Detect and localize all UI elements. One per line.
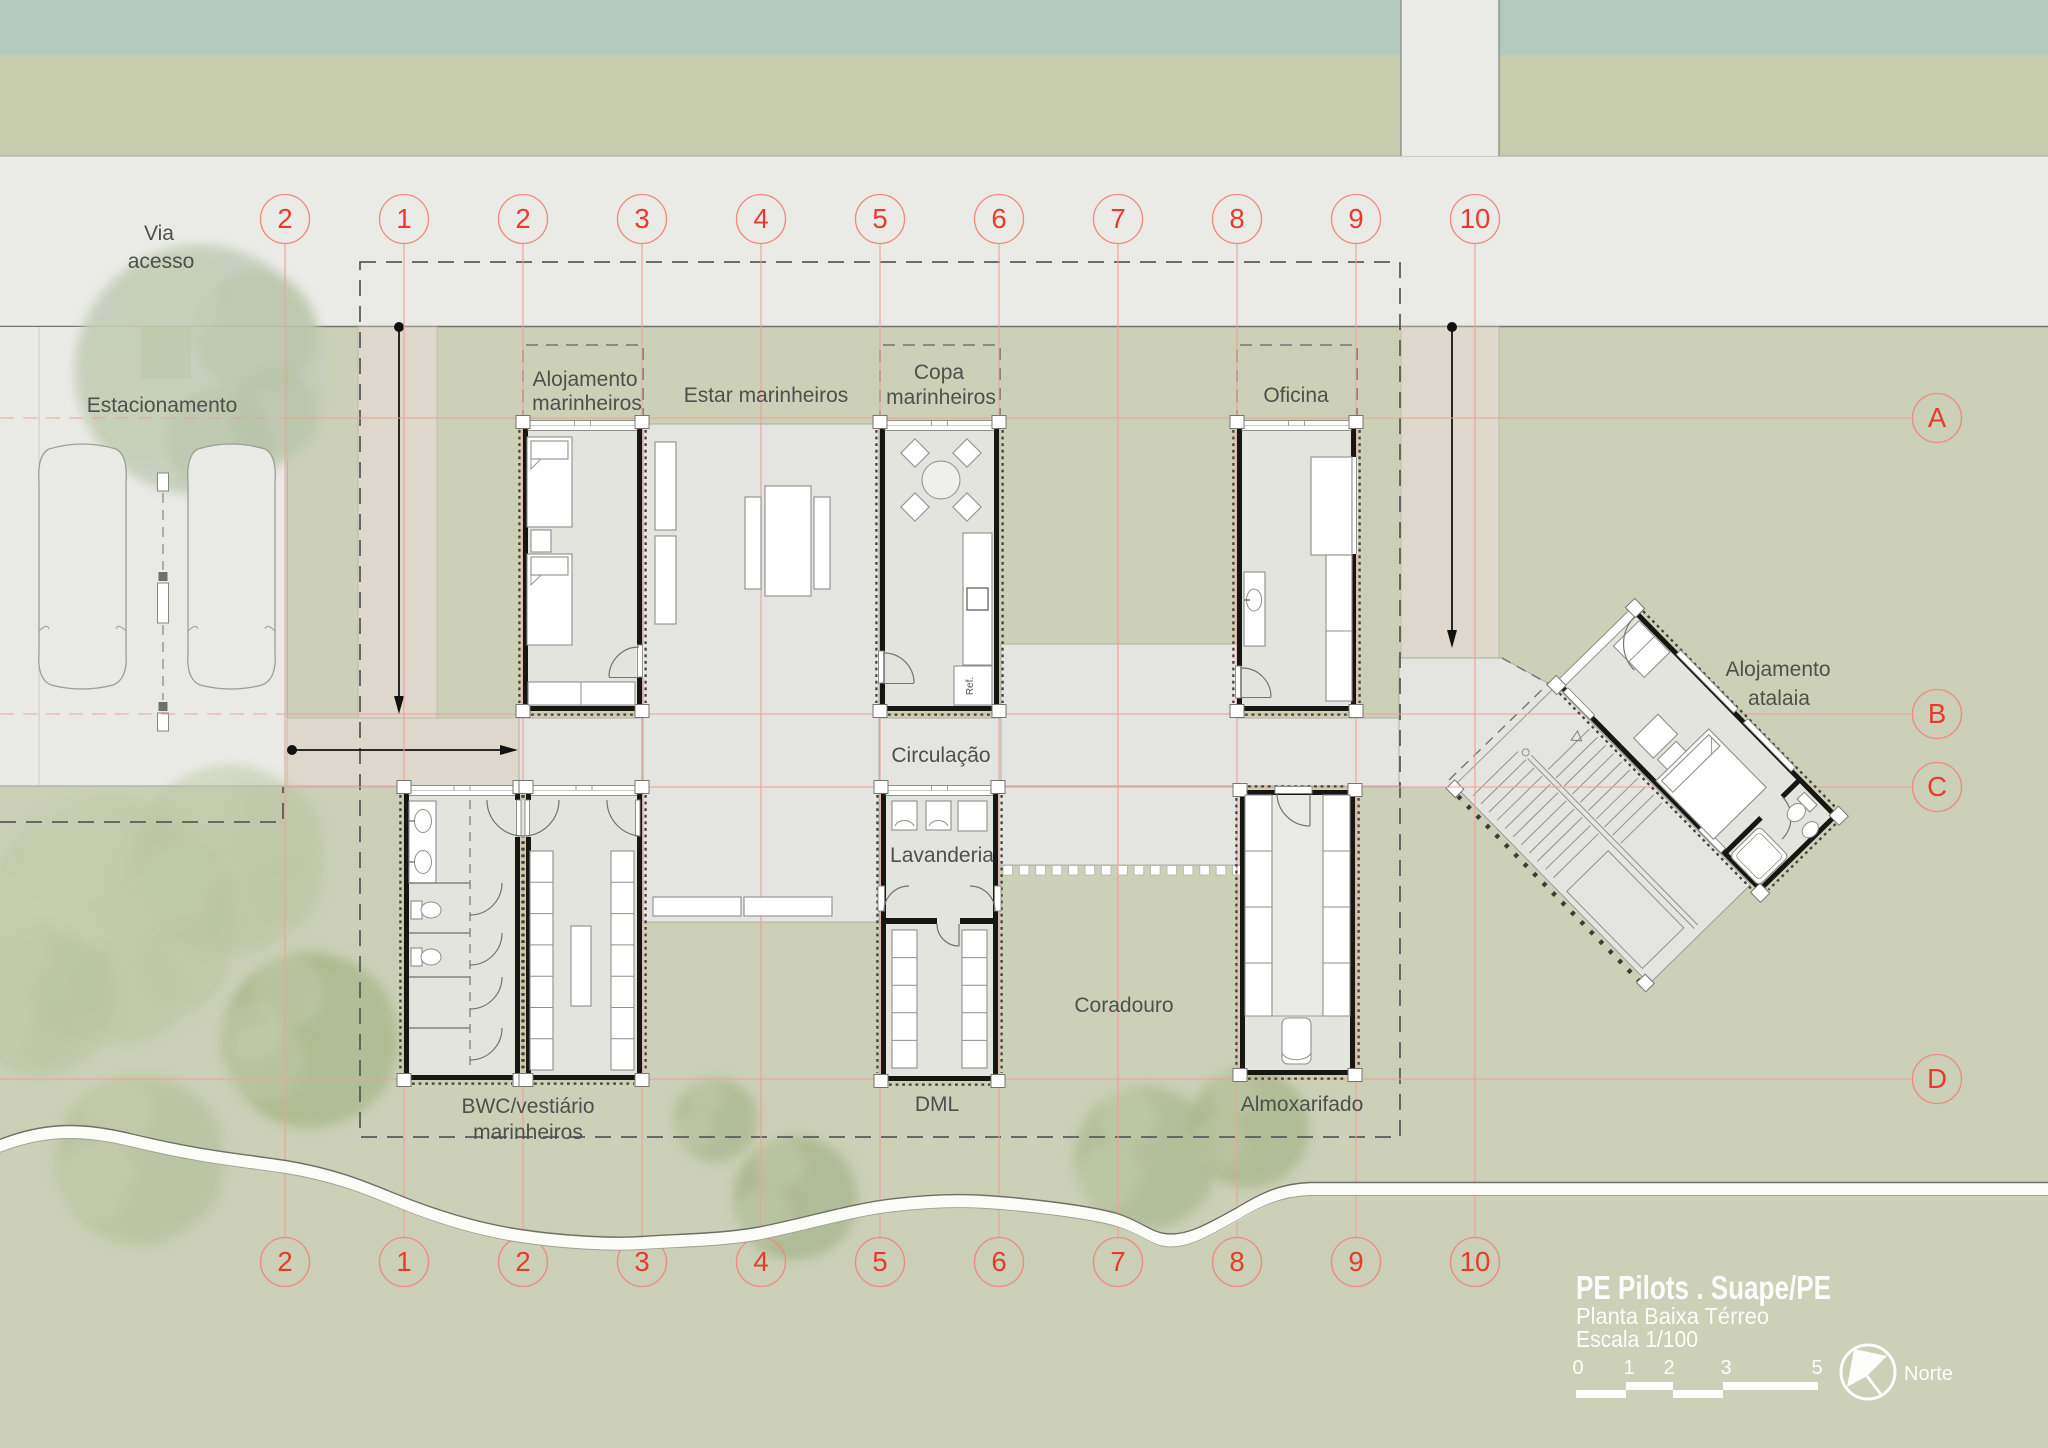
svg-text:B: B	[1928, 698, 1946, 729]
svg-text:1: 1	[396, 203, 411, 234]
svg-text:Copa: Copa	[914, 361, 965, 384]
svg-text:BWC/vestiário: BWC/vestiário	[461, 1095, 594, 1118]
svg-text:marinheiros: marinheiros	[532, 392, 642, 415]
svg-text:0: 0	[1572, 1357, 1583, 1379]
svg-text:Circulação: Circulação	[891, 744, 990, 767]
svg-text:atalaia: atalaia	[1748, 687, 1810, 710]
svg-text:1: 1	[396, 1246, 411, 1277]
svg-text:3: 3	[634, 1246, 649, 1277]
svg-text:DML: DML	[915, 1093, 959, 1116]
svg-text:Estar marinheiros: Estar marinheiros	[684, 384, 849, 407]
svg-text:6: 6	[991, 203, 1006, 234]
svg-text:A: A	[1928, 402, 1947, 433]
svg-text:4: 4	[753, 1246, 768, 1277]
svg-text:8: 8	[1229, 1246, 1244, 1277]
svg-text:9: 9	[1348, 203, 1363, 234]
svg-text:Ref.: Ref.	[965, 677, 976, 695]
svg-text:2: 2	[515, 1246, 530, 1277]
svg-text:Escala 1/100: Escala 1/100	[1576, 1326, 1698, 1352]
svg-text:2: 2	[515, 203, 530, 234]
svg-text:Almoxarifado: Almoxarifado	[1241, 1093, 1364, 1116]
svg-text:Alojamento: Alojamento	[1725, 658, 1830, 681]
svg-text:Norte: Norte	[1904, 1363, 1953, 1385]
svg-text:Alojamento: Alojamento	[532, 368, 637, 391]
svg-text:Oficina: Oficina	[1263, 384, 1329, 407]
svg-text:marinheiros: marinheiros	[473, 1121, 583, 1144]
svg-text:2: 2	[277, 1246, 292, 1277]
svg-text:D: D	[1927, 1063, 1947, 1094]
svg-text:7: 7	[1110, 203, 1125, 234]
svg-text:Via: Via	[144, 222, 174, 245]
svg-text:10: 10	[1460, 203, 1491, 234]
svg-text:5: 5	[872, 203, 887, 234]
svg-text:3: 3	[634, 203, 649, 234]
svg-text:Coradouro: Coradouro	[1074, 994, 1173, 1017]
svg-text:8: 8	[1229, 203, 1244, 234]
svg-text:7: 7	[1110, 1246, 1125, 1277]
svg-text:1: 1	[1623, 1357, 1634, 1379]
svg-text:PE Pilots . Suape/PE: PE Pilots . Suape/PE	[1576, 1269, 1831, 1306]
svg-text:2: 2	[277, 203, 292, 234]
svg-text:6: 6	[991, 1246, 1006, 1277]
svg-text:3: 3	[1720, 1357, 1731, 1379]
svg-text:5: 5	[872, 1246, 887, 1277]
svg-text:Estacionamento: Estacionamento	[87, 394, 238, 417]
svg-text:Lavanderia: Lavanderia	[890, 844, 994, 867]
svg-text:9: 9	[1348, 1246, 1363, 1277]
svg-text:10: 10	[1460, 1246, 1491, 1277]
svg-text:C: C	[1927, 771, 1947, 802]
svg-text:4: 4	[753, 203, 768, 234]
svg-text:2: 2	[1663, 1357, 1674, 1379]
svg-text:acesso: acesso	[128, 250, 195, 273]
svg-text:marinheiros: marinheiros	[886, 386, 996, 409]
svg-text:5: 5	[1811, 1357, 1822, 1379]
